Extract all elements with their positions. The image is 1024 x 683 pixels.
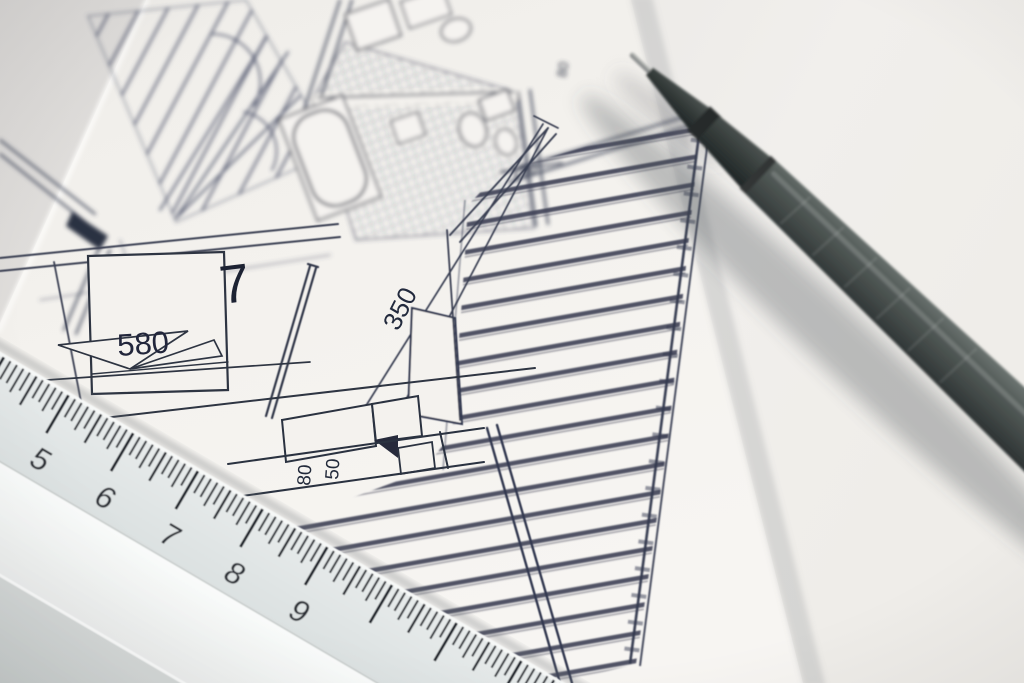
photo-canvas: 80 150: [0, 0, 1024, 683]
vignette-overlay: [0, 0, 1024, 683]
scene: 80 150: [0, 0, 1024, 683]
